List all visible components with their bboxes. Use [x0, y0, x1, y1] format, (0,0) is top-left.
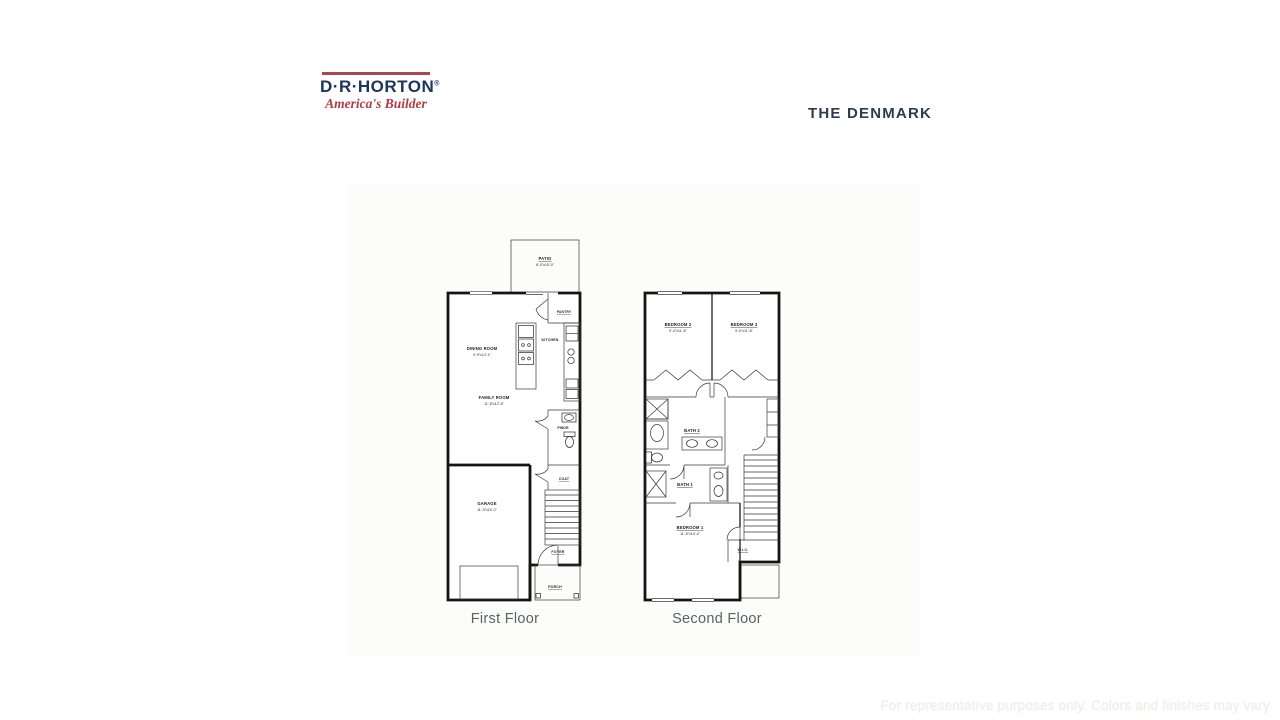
disclaimer-text: For representative purposes only. Colors…	[880, 698, 1270, 713]
porch-roof	[741, 565, 779, 598]
bedroom3-dims: 9'-0"x11'-8"	[735, 329, 754, 333]
toilet-icon	[646, 452, 652, 463]
dining-label: DINING ROOM	[467, 346, 498, 351]
first-floor-caption: First Floor	[430, 611, 580, 627]
logo-rule	[322, 72, 430, 75]
patio: PATIO 8'-0"x10'-0"	[511, 240, 579, 293]
family-dims: 11'-8"x12'-8"	[484, 402, 505, 406]
toilet-icon	[714, 486, 723, 497]
pantry-label: PANTRY	[557, 310, 572, 314]
range-icon	[519, 339, 534, 351]
patio-dims: 8'-0"x10'-0"	[536, 263, 555, 267]
bath2-label: BATH 2	[684, 428, 700, 433]
plan-sheet	[348, 183, 920, 657]
porch-post	[536, 594, 541, 599]
logo-wordmark: D·R·HORTON®	[320, 78, 432, 96]
oven-icon	[566, 379, 578, 388]
toilet-icon	[564, 432, 575, 437]
page: { "logo": { "wordmark": "D·R·HORTON", "r…	[0, 0, 1280, 720]
registered-mark: ®	[434, 80, 440, 87]
bedroom2-dims: 9'-4"x11'-8"	[669, 329, 688, 333]
bedroom1-label: BEDROOM 1	[677, 525, 704, 530]
bedroom1-dims: 11'-5"x14'-4"	[680, 532, 701, 536]
builder-logo: D·R·HORTON® America's Builder	[320, 72, 432, 112]
kitchen-label: KITCHEN	[541, 338, 558, 342]
garage-label: GARAGE	[477, 501, 496, 506]
bedroom3-label: BEDROOM 3	[731, 322, 758, 327]
dining-dims: 9'-9"x13'-1"	[473, 353, 492, 357]
family-label: FAMILY ROOM	[479, 395, 510, 400]
logo-tagline: America's Builder	[320, 96, 432, 112]
bedroom2-label: BEDROOM 2	[665, 322, 692, 327]
porch-label: PORCH	[548, 585, 562, 589]
second-floor-caption: Second Floor	[642, 611, 792, 627]
garage-dims: 11'-5"x19'-2"	[477, 508, 498, 512]
plan-title: THE DENMARK	[780, 105, 960, 122]
logo-wordmark-text: D·R·HORTON	[320, 77, 434, 96]
patio-label: PATIO	[539, 256, 553, 261]
wic-label: W.I.C.	[738, 548, 749, 552]
coat-label: COAT	[559, 477, 570, 481]
sink-icon	[568, 349, 574, 355]
bath1-label: BATH 1	[677, 482, 693, 487]
second-floor-plan: BEDROOM 2 9'-4"x11'-8" BEDROOM 3 9'-0"x1…	[640, 285, 790, 625]
pwdr-label: PWDR	[557, 426, 569, 430]
sink-icon	[714, 472, 723, 479]
first-floor-plan: PATIO 8'-0"x10'-0" PANTRY KITCHEN DINING…	[440, 233, 590, 605]
porch: PORCH	[535, 565, 580, 600]
